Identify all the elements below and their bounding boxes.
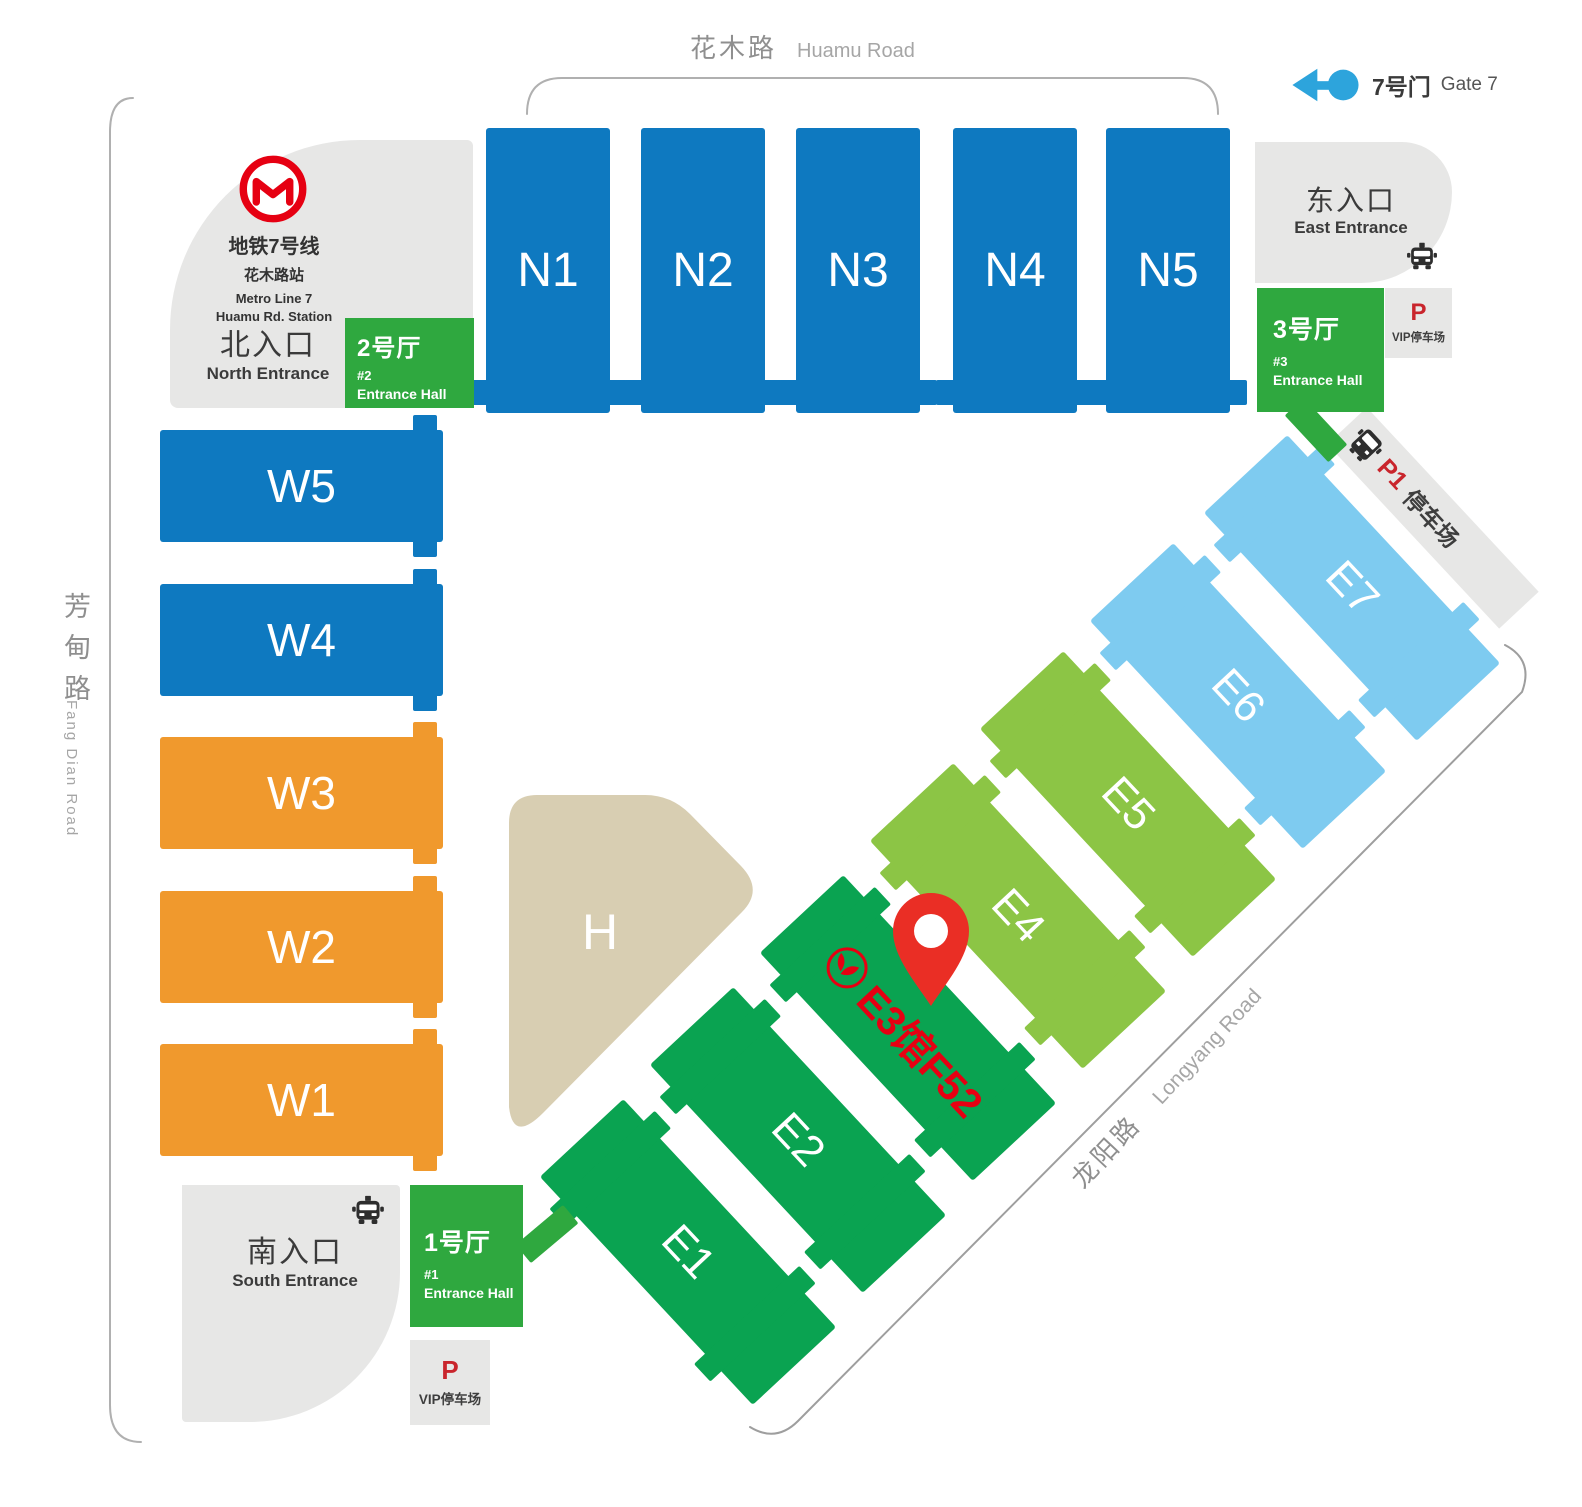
entrance-hall-number: #2 [357, 368, 474, 383]
gate7-arrow-icon [1288, 62, 1362, 108]
entrance-hall-number: #3 [1273, 354, 1384, 369]
entrance-hall-2: 2号厅 #2 Entrance Hall [345, 318, 474, 408]
hall-label: E1 [654, 1217, 723, 1286]
hall-w1: W1 [160, 1044, 443, 1156]
vip-parking-east-label: VIP停车场 [1392, 329, 1445, 345]
vip-parking-east: P VIP停车场 [1385, 288, 1452, 358]
metro-station-zh: 花木路站 [244, 264, 304, 285]
hall-label: W4 [267, 617, 336, 663]
hall-n4: N4 [953, 128, 1077, 413]
vip-parking-south-label: VIP停车场 [419, 1388, 481, 1408]
road-huamu-line [527, 78, 1218, 114]
bus-icon [1344, 424, 1388, 468]
road-huamu-en: Huamu Road [797, 40, 915, 63]
hall-n5: N5 [1106, 128, 1230, 413]
south-entrance-en: South Entrance [232, 1271, 358, 1291]
vip-parking-south: P VIP停车场 [410, 1340, 490, 1425]
north-entrance-en: North Entrance [207, 364, 330, 384]
east-entrance-zh: 东入口 [1306, 184, 1396, 218]
hall-h [495, 780, 785, 1160]
entrance-hall-1: 1号厅 #1 Entrance Hall [410, 1185, 523, 1327]
hall-w2: W2 [160, 891, 443, 1003]
road-huamu-zh: 花木路 [690, 28, 777, 65]
hall-w3: W3 [160, 737, 443, 849]
entrance-hall-number: #1 [424, 1267, 523, 1282]
metro-logo-icon [234, 150, 312, 228]
south-entrance-label: 南入口 South Entrance [200, 1235, 390, 1291]
metro-station-label: 地铁7号线 花木路站 Metro Line 7 Huamu Rd. Statio… [188, 224, 360, 326]
east-entrance-label: 东入口 East Entrance [1271, 184, 1431, 238]
expo-venue-map: 花木路 Huamu Road 芳甸路 Fang Dian Road 龙阳路 Lo… [0, 0, 1582, 1507]
east-entrance-en: East Entrance [1294, 218, 1407, 238]
hall-label: N2 [672, 247, 733, 295]
road-fangdian-zh: 芳甸路 [56, 592, 95, 715]
hall-w4: W4 [160, 584, 443, 696]
p1-parking-code: P1 [1371, 453, 1413, 495]
hall-n3: N3 [796, 128, 920, 413]
parking-p-icon: P [441, 1357, 458, 1383]
hall-n2: N2 [641, 128, 765, 413]
north-entrance-label: 北入口 North Entrance [178, 328, 358, 384]
metro-line-en: Metro Line 7 [236, 290, 313, 308]
road-fangdian-en: Fang Dian Road [63, 700, 80, 837]
hall-label: W3 [267, 770, 336, 816]
hall-label: E6 [1204, 661, 1273, 730]
hall-label: E7 [1318, 553, 1387, 622]
hall-label: N4 [984, 247, 1045, 295]
hall-label: E5 [1094, 769, 1163, 838]
entrance-hall-3: 3号厅 #3 Entrance Hall [1257, 288, 1384, 412]
south-entrance-zh: 南入口 [247, 1235, 343, 1271]
road-huamu-label: 花木路 Huamu Road [690, 28, 915, 65]
hall-label: W2 [267, 924, 336, 970]
hall-w5: W5 [160, 430, 443, 542]
entrance-hall-subtitle: Entrance Hall [1273, 372, 1384, 388]
entrance-hall-title: 2号厅 [357, 328, 474, 363]
hall-label: W5 [267, 463, 336, 509]
taxi-icon [350, 1195, 386, 1227]
hall-label: W1 [267, 1077, 336, 1123]
hall-label: E4 [984, 881, 1053, 950]
hall-n1: N1 [486, 128, 610, 413]
entrance-hall-title: 3号厅 [1273, 310, 1384, 346]
metro-station-en: Huamu Rd. Station [216, 308, 332, 326]
entrance-hall-subtitle: Entrance Hall [357, 386, 474, 402]
gate7-en: Gate 7 [1441, 74, 1498, 96]
gate7-zh: 7号门 [1372, 68, 1431, 102]
parking-p-icon: P [1410, 301, 1426, 325]
entrance-hall-subtitle: Entrance Hall [424, 1285, 523, 1301]
hall-label: H [582, 903, 618, 961]
hall-label: N1 [517, 247, 578, 295]
hall-label: N3 [827, 247, 888, 295]
east-entrance-area: 东入口 East Entrance [1255, 142, 1452, 283]
taxi-icon [1405, 242, 1439, 272]
gate7-legend: 7号门 Gate 7 [1288, 62, 1498, 108]
road-fangdian-line [110, 98, 141, 1442]
metro-line-zh: 地铁7号线 [228, 230, 319, 259]
entrance-hall-title: 1号厅 [424, 1223, 523, 1259]
north-entrance-zh: 北入口 [220, 328, 316, 364]
hall-label: N5 [1137, 247, 1198, 295]
location-pin-icon [884, 884, 978, 1010]
